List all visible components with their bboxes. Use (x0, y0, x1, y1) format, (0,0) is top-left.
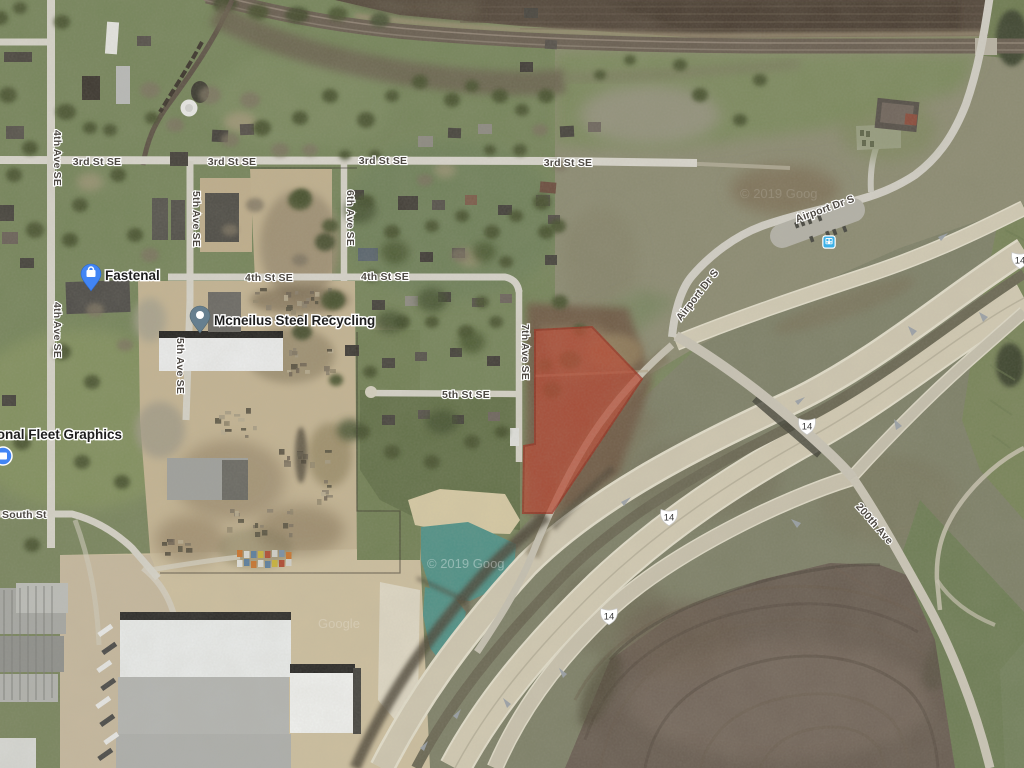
svg-text:4th Ave SE: 4th Ave SE (51, 302, 63, 358)
svg-text:4th Ave SE: 4th Ave SE (51, 130, 63, 186)
svg-text:14: 14 (1015, 255, 1024, 266)
svg-text:3rd St SE: 3rd St SE (73, 156, 121, 168)
svg-text:14: 14 (604, 611, 615, 622)
svg-text:Fastenal: Fastenal (105, 268, 160, 283)
svg-text:14: 14 (664, 512, 675, 523)
svg-text:3rd St SE: 3rd St SE (208, 156, 256, 168)
svg-text:ional Fleet Graphics: ional Fleet Graphics (0, 427, 122, 442)
svg-text:Google: Google (318, 616, 360, 631)
svg-text:14: 14 (802, 421, 813, 432)
svg-text:6th Ave SE: 6th Ave SE (344, 190, 356, 246)
svg-text:3rd St SE: 3rd St SE (544, 157, 592, 169)
svg-text:Mcneilus Steel Recycling: Mcneilus Steel Recycling (214, 313, 375, 328)
svg-text:5th Ave SE: 5th Ave SE (190, 191, 202, 247)
svg-text:© 2019 Goog: © 2019 Goog (740, 186, 818, 201)
svg-text:South St: South St (2, 509, 47, 521)
svg-text:4th St SE: 4th St SE (245, 272, 293, 284)
svg-text:© 2019 Goog: © 2019 Goog (427, 556, 505, 571)
svg-text:3rd St SE: 3rd St SE (359, 155, 407, 167)
svg-text:5th St SE: 5th St SE (442, 389, 490, 401)
svg-text:4th St SE: 4th St SE (361, 271, 409, 283)
svg-text:5th Ave SE: 5th Ave SE (174, 338, 186, 394)
svg-text:7th Ave SE: 7th Ave SE (519, 324, 531, 380)
